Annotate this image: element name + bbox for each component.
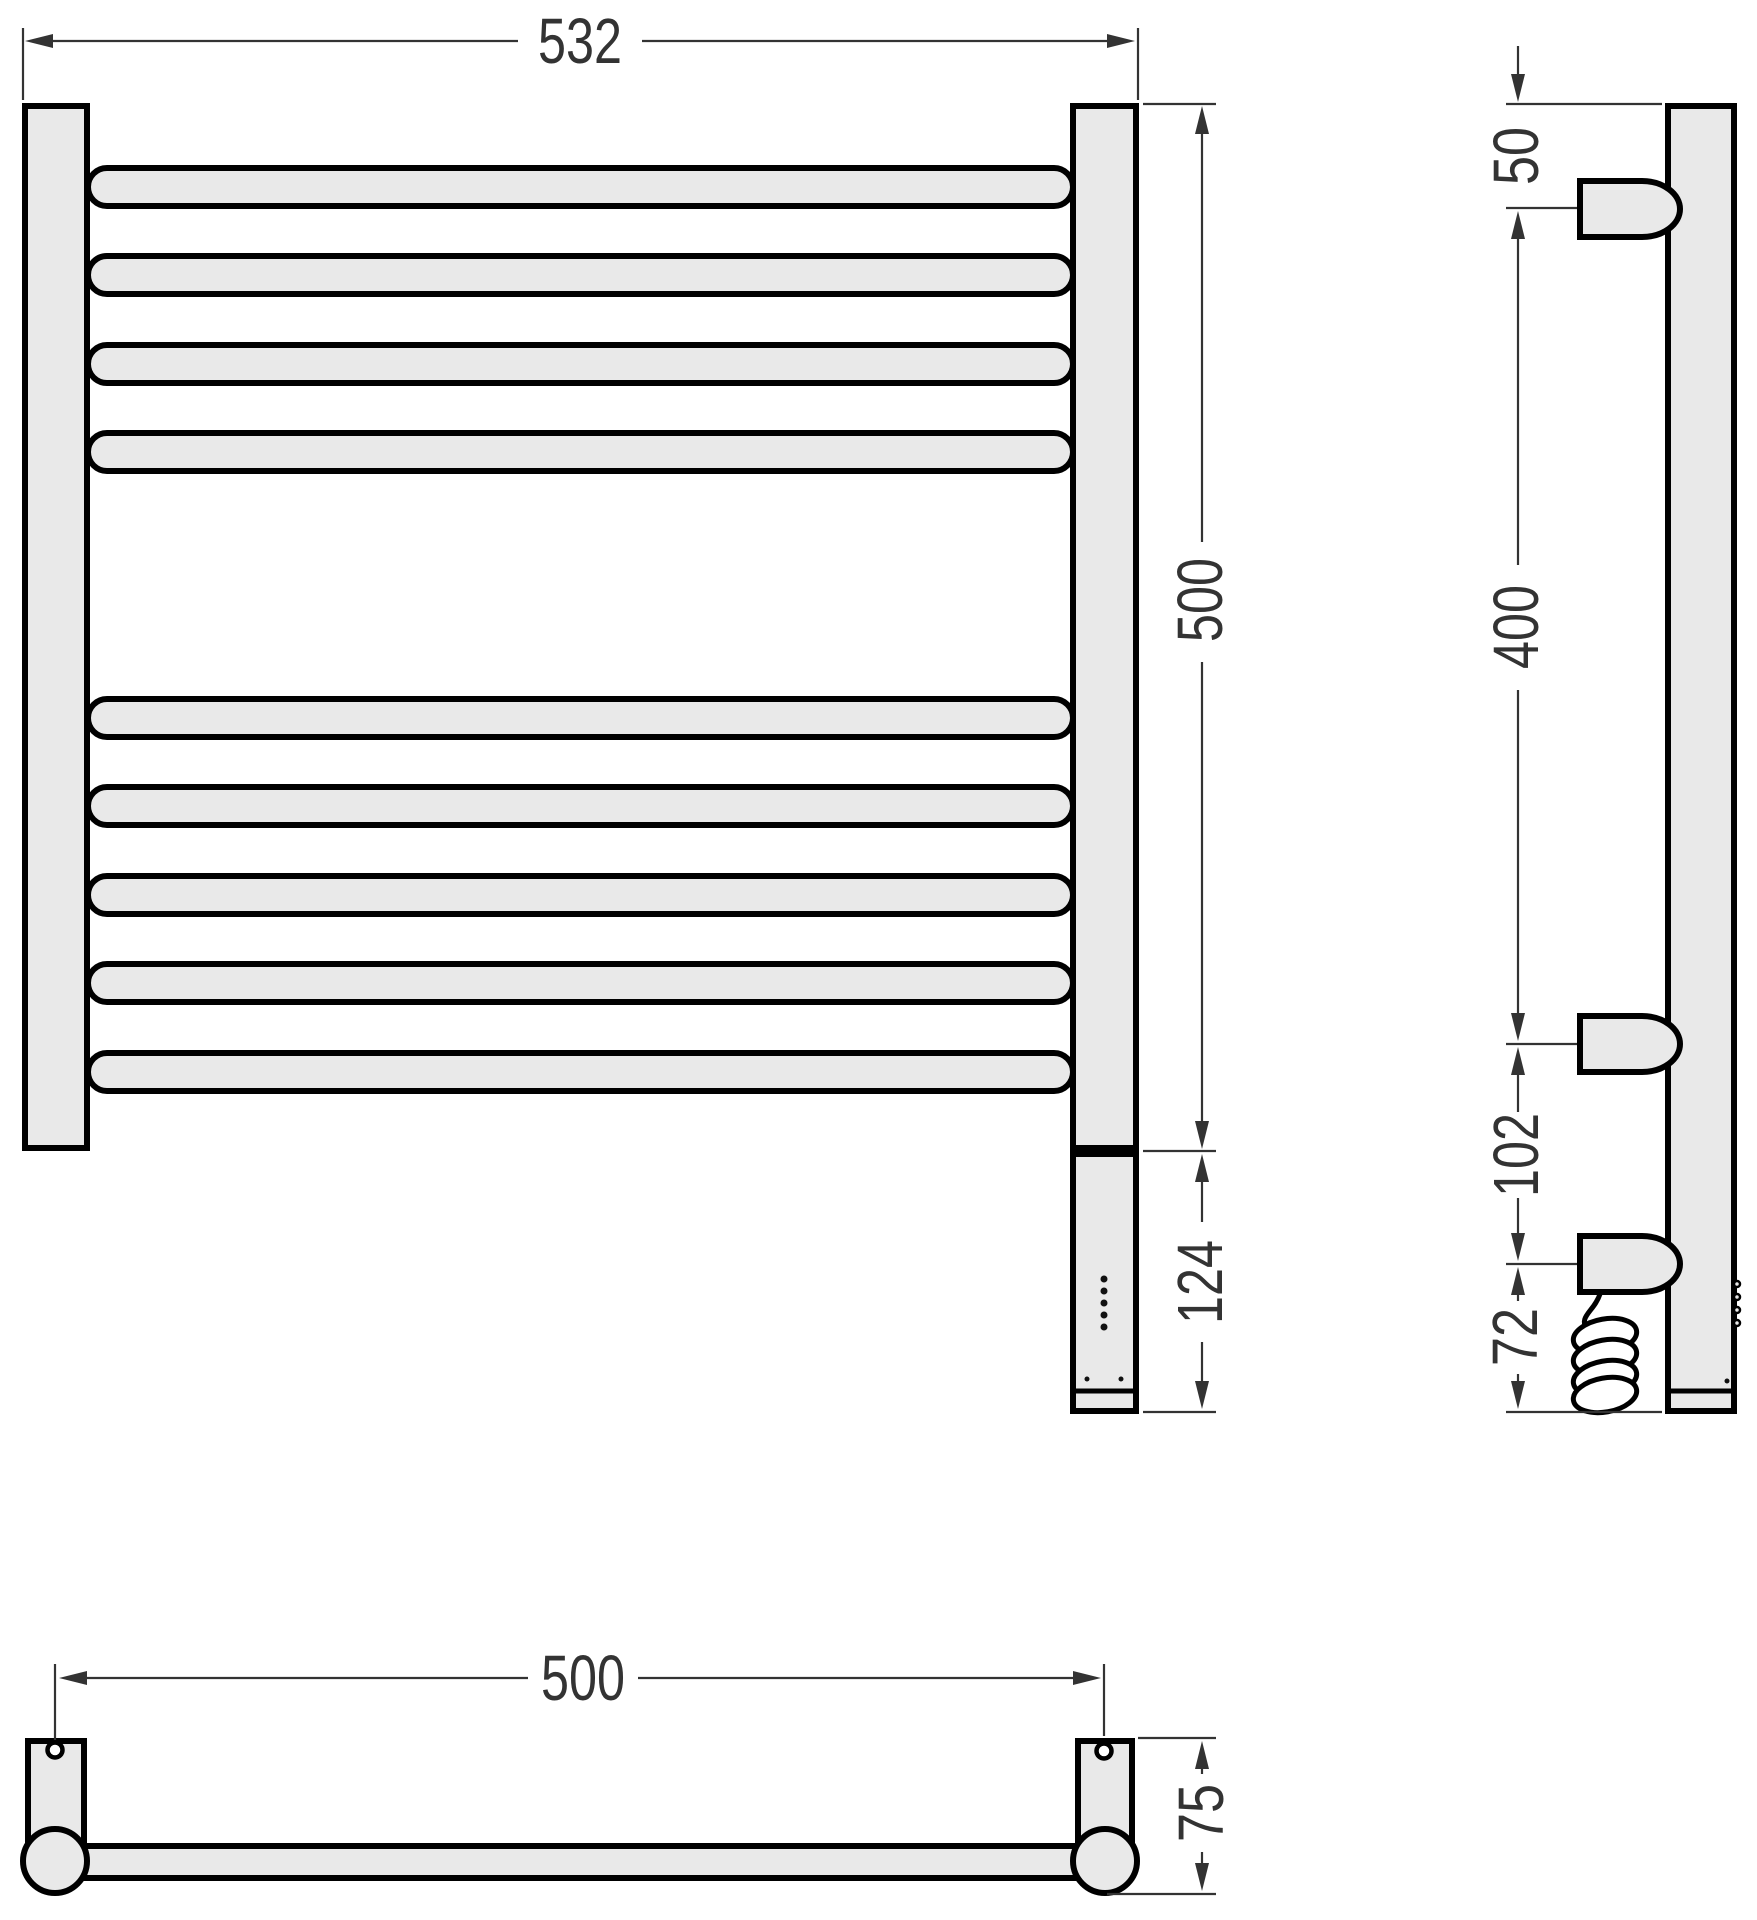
fastener-dot bbox=[1085, 1377, 1090, 1382]
mounting-hole-right bbox=[1097, 1744, 1112, 1759]
dim-mount-centers: 500 bbox=[55, 1642, 1104, 1740]
towel-rail-drawing: 532 500 124 bbox=[0, 0, 1757, 1920]
dim-bracket-spacing: 400 bbox=[1480, 211, 1577, 1044]
dim-label-rail-height: 500 bbox=[1164, 558, 1236, 642]
front-view bbox=[25, 106, 1139, 1411]
technical-drawing-page: 532 500 124 bbox=[0, 0, 1757, 1920]
crossbar-plan bbox=[63, 1846, 1098, 1878]
dim-label-top-to-bracket: 50 bbox=[1480, 127, 1552, 185]
dim-label-overall-width: 532 bbox=[538, 5, 622, 77]
dim-label-control-box: 124 bbox=[1164, 1240, 1236, 1324]
right-post bbox=[1073, 106, 1136, 1148]
post-section-left bbox=[23, 1829, 87, 1893]
rung bbox=[88, 787, 1073, 825]
bottom-view bbox=[23, 1741, 1137, 1893]
dim-label-bracket-spacing: 400 bbox=[1480, 585, 1552, 669]
rung bbox=[88, 1053, 1073, 1091]
wall-bracket-bottom bbox=[1580, 1016, 1680, 1072]
rung bbox=[88, 345, 1073, 383]
dim-label-bracket-to-element: 102 bbox=[1480, 1113, 1552, 1197]
fastener-dot bbox=[1119, 1377, 1124, 1382]
rung bbox=[88, 964, 1073, 1002]
mounting-hole-left bbox=[48, 1743, 63, 1758]
dim-rail-height: 500 bbox=[1143, 104, 1236, 1151]
wall-bracket-top bbox=[1580, 181, 1680, 237]
power-cord-coil bbox=[1571, 1314, 1640, 1418]
dim-overall-width: 532 bbox=[23, 5, 1138, 100]
post-section-right bbox=[1073, 1829, 1137, 1893]
heating-element bbox=[1580, 1236, 1680, 1292]
dim-label-mount-centers: 500 bbox=[541, 1642, 625, 1714]
rung bbox=[88, 256, 1073, 294]
left-post bbox=[25, 106, 87, 1148]
side-view bbox=[1571, 106, 1740, 1417]
rungs bbox=[88, 168, 1073, 1091]
rung bbox=[88, 876, 1073, 914]
rung bbox=[88, 433, 1073, 471]
dim-label-element-to-end: 72 bbox=[1479, 1308, 1551, 1366]
control-box bbox=[1073, 1154, 1136, 1411]
dim-label-depth: 75 bbox=[1165, 1784, 1237, 1842]
rail-tube-profile bbox=[1668, 106, 1734, 1411]
fastener-dot bbox=[1725, 1379, 1730, 1384]
rung bbox=[88, 699, 1073, 737]
dim-bracket-to-element: 102 bbox=[1480, 1047, 1577, 1264]
rung bbox=[88, 168, 1073, 206]
dim-control-box: 124 bbox=[1143, 1154, 1236, 1412]
